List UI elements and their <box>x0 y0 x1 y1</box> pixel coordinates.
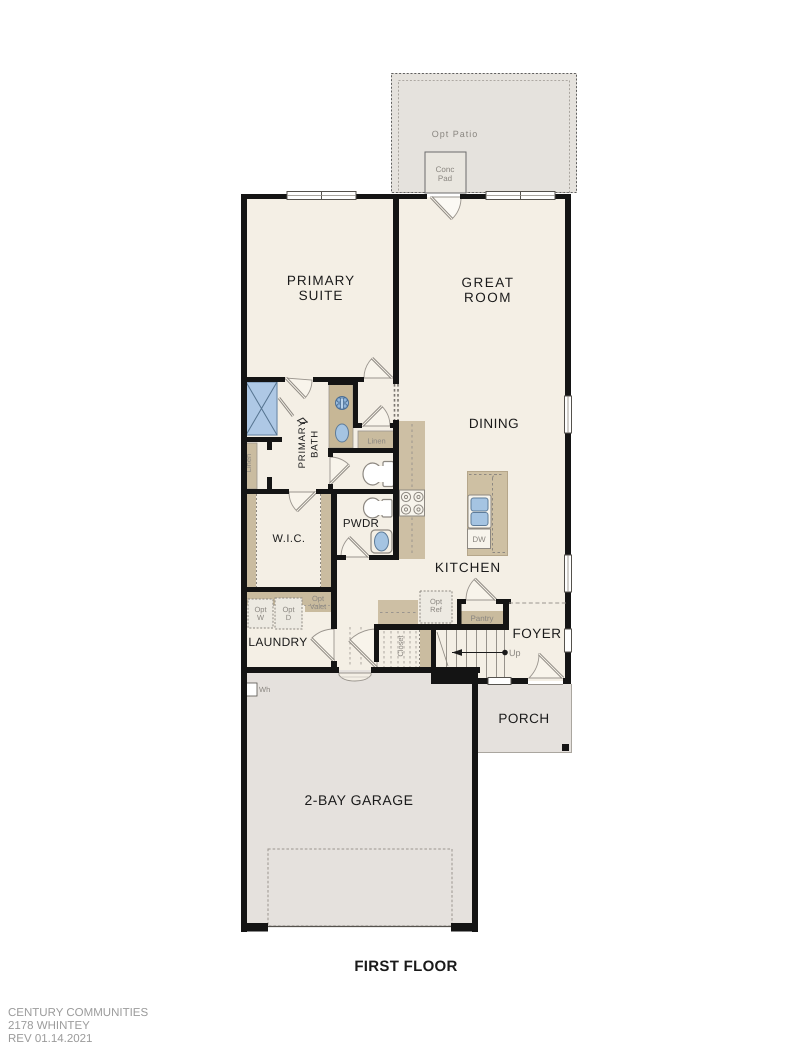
svg-text:W.I.C.: W.I.C. <box>273 533 306 545</box>
svg-text:Valet: Valet <box>310 602 327 611</box>
svg-text:PRIMARY: PRIMARY <box>287 273 355 288</box>
svg-text:BATH: BATH <box>310 430 321 458</box>
svg-text:CENTURY COMMUNITIES: CENTURY COMMUNITIES <box>8 1007 148 1019</box>
svg-text:LAUNDRY: LAUNDRY <box>248 635 307 649</box>
svg-text:Opt Patio: Opt Patio <box>432 129 479 139</box>
svg-text:2178 WHINTEY: 2178 WHINTEY <box>8 1020 90 1032</box>
svg-text:Pad: Pad <box>438 174 452 183</box>
svg-text:PORCH: PORCH <box>498 711 549 726</box>
svg-text:Conc: Conc <box>436 165 455 174</box>
svg-text:DINING: DINING <box>469 416 519 431</box>
svg-text:REV 01.14.2021: REV 01.14.2021 <box>8 1033 92 1045</box>
svg-text:GREAT: GREAT <box>461 275 514 290</box>
svg-text:Up: Up <box>509 648 521 658</box>
svg-text:ROOM: ROOM <box>464 290 512 305</box>
svg-text:FOYER: FOYER <box>512 626 561 641</box>
svg-text:KITCHEN: KITCHEN <box>435 560 501 575</box>
svg-text:DW: DW <box>472 535 486 544</box>
svg-text:PRIMARY: PRIMARY <box>297 420 308 469</box>
svg-text:SUITE: SUITE <box>299 288 344 303</box>
svg-text:Closet: Closet <box>396 634 405 656</box>
svg-text:Ref: Ref <box>430 605 443 614</box>
svg-text:D: D <box>286 613 292 622</box>
svg-text:PWDR: PWDR <box>343 518 379 530</box>
svg-text:Linen: Linen <box>367 437 385 446</box>
svg-text:Pantry: Pantry <box>470 614 493 623</box>
svg-text:2-BAY GARAGE: 2-BAY GARAGE <box>305 792 414 808</box>
svg-text:Wh: Wh <box>259 685 270 694</box>
svg-text:W: W <box>257 613 265 622</box>
svg-text:FIRST FLOOR: FIRST FLOOR <box>354 958 457 975</box>
